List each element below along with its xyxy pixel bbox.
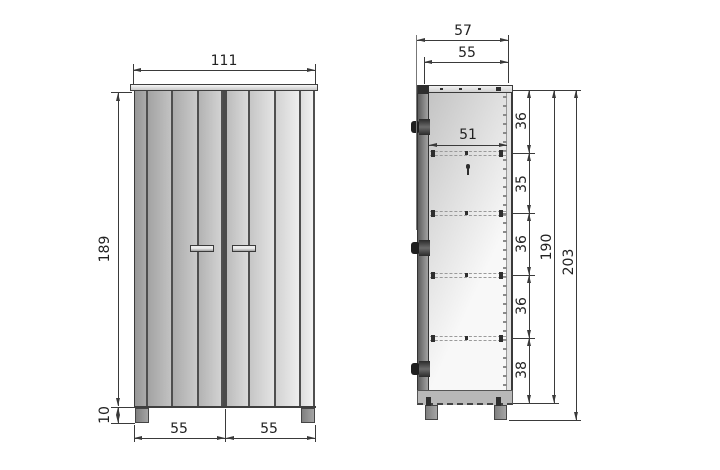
dim-arrow: [527, 90, 531, 98]
dim-arrow: [527, 267, 531, 275]
door-handle-right: [232, 245, 256, 252]
front-left-door-dim-label: 55: [170, 421, 188, 437]
shelf-fitting: [465, 273, 468, 277]
extension-line: [513, 338, 535, 339]
side-view: 57 55 51 36 35 36 36 38: [360, 0, 720, 470]
side-section-dim-label-1: 36: [514, 112, 530, 130]
dim-arrow: [429, 143, 437, 147]
dim-arrow: [527, 205, 531, 213]
shelf-fitting: [499, 335, 503, 342]
shelf-fitting: [499, 150, 503, 157]
front-leg-dim-label: 10: [97, 406, 113, 424]
shelf-fitting: [499, 210, 503, 217]
extension-line: [513, 90, 581, 91]
wardrobe-leg-front-left: [135, 408, 149, 423]
hinge-top: [411, 119, 431, 135]
extension-line: [315, 64, 316, 84]
dim-arrow: [552, 90, 556, 98]
shelf-fitting: [431, 272, 435, 279]
dimension-line-side-depth: [417, 40, 509, 41]
screw: [459, 88, 462, 90]
side-section-dim-label-4: 36: [514, 297, 530, 315]
dimension-line-side-top-depth: [424, 62, 509, 63]
dim-arrow: [307, 436, 315, 440]
shelf-fitting: [499, 272, 503, 279]
side-top-depth-dim-label: 55: [458, 45, 476, 61]
dim-arrow: [424, 60, 432, 64]
front-right-door-dim-label: 55: [260, 421, 278, 437]
hinge-plate: [419, 361, 430, 377]
screw: [478, 88, 481, 90]
shelf-fitting: [465, 336, 468, 340]
screw: [440, 88, 443, 90]
shelf-fitting: [431, 335, 435, 342]
shelf-pin-holes: [503, 96, 507, 388]
dim-arrow: [527, 145, 531, 153]
hinge-middle: [411, 240, 431, 256]
dim-arrow: [133, 68, 141, 72]
shelf-line: [430, 336, 506, 341]
dim-arrow: [226, 436, 234, 440]
hinge-bottom: [411, 361, 431, 377]
shelf-line: [430, 211, 506, 216]
dimension-line-door-widths: [134, 438, 316, 439]
door-plank: [276, 91, 301, 407]
dim-arrow: [134, 436, 142, 440]
extension-line: [513, 213, 535, 214]
dim-arrow: [500, 60, 508, 64]
dim-arrow: [307, 68, 315, 72]
shelf-fitting: [465, 151, 468, 155]
hinge-plate: [419, 240, 430, 256]
dim-arrow: [116, 93, 120, 101]
front-view: 111 189 10 55 55: [0, 0, 360, 470]
side-section-dim-label-3: 36: [514, 235, 530, 253]
corner-bracket: [418, 85, 429, 94]
side-shelf-depth-dim-label: 51: [459, 127, 477, 143]
wardrobe-leg-front-right: [301, 408, 315, 423]
door-plank: [301, 91, 315, 407]
dim-arrow: [552, 395, 556, 403]
dim-arrow: [527, 330, 531, 338]
side-section-dim-label-2: 35: [514, 175, 530, 193]
extension-line: [133, 64, 134, 84]
extension-line: [513, 275, 535, 276]
shelf-fitting: [431, 150, 435, 157]
wardrobe-leg-side-back: [494, 405, 507, 420]
dimension-line-front-height: [118, 93, 119, 406]
dimension-line-shelf-depth: [429, 145, 507, 146]
dim-arrow: [417, 38, 425, 42]
screw: [496, 87, 501, 91]
leg-fitting: [426, 397, 431, 406]
wardrobe-top-board: [130, 84, 318, 91]
side-depth-dim-label: 57: [454, 23, 472, 39]
body-bottom-edge: [134, 406, 316, 408]
hinge-plate: [419, 119, 430, 135]
side-back-panel: [506, 93, 513, 390]
side-overall-height-dim-label: 203: [561, 249, 577, 276]
extension-line: [111, 407, 135, 408]
technical-drawing: 111 189 10 55 55: [0, 0, 720, 470]
shelf-fitting: [465, 211, 468, 215]
shelf-line: [430, 273, 506, 278]
extension-line: [508, 35, 509, 83]
wardrobe-leg-side-front: [425, 405, 438, 420]
dim-arrow: [499, 143, 507, 147]
leg-fitting: [496, 397, 501, 406]
front-height-dim-label: 189: [97, 236, 113, 263]
extension-line-floor: [509, 420, 581, 421]
extension-line: [513, 403, 559, 404]
dim-arrow: [527, 395, 531, 403]
door-plank: [134, 91, 148, 407]
front-width-dim-label: 111: [211, 53, 238, 69]
extension-line: [111, 423, 135, 424]
side-section-dim-label-5: 38: [514, 361, 530, 379]
extension-line: [416, 35, 417, 230]
dim-arrow: [527, 153, 531, 161]
shelf-fitting: [431, 210, 435, 217]
dimension-line-front-width: [133, 70, 316, 71]
dim-arrow: [116, 407, 120, 415]
dim-arrow: [574, 90, 578, 98]
side-interior-height-dim-label: 190: [539, 234, 555, 261]
dim-arrow: [574, 412, 578, 420]
extension-line: [315, 425, 316, 442]
dim-arrow: [527, 213, 531, 221]
dim-arrow: [217, 436, 225, 440]
dim-arrow: [527, 275, 531, 283]
dim-arrow: [116, 415, 120, 423]
dim-arrow: [116, 398, 120, 406]
extension-line: [513, 153, 535, 154]
dim-arrow: [527, 338, 531, 346]
shelf-line: [430, 151, 506, 156]
lock-pin-stem: [467, 168, 469, 175]
door-handle-left: [190, 245, 214, 252]
dim-arrow: [500, 38, 508, 42]
door-plank: [148, 91, 173, 407]
extension-line: [111, 92, 132, 93]
